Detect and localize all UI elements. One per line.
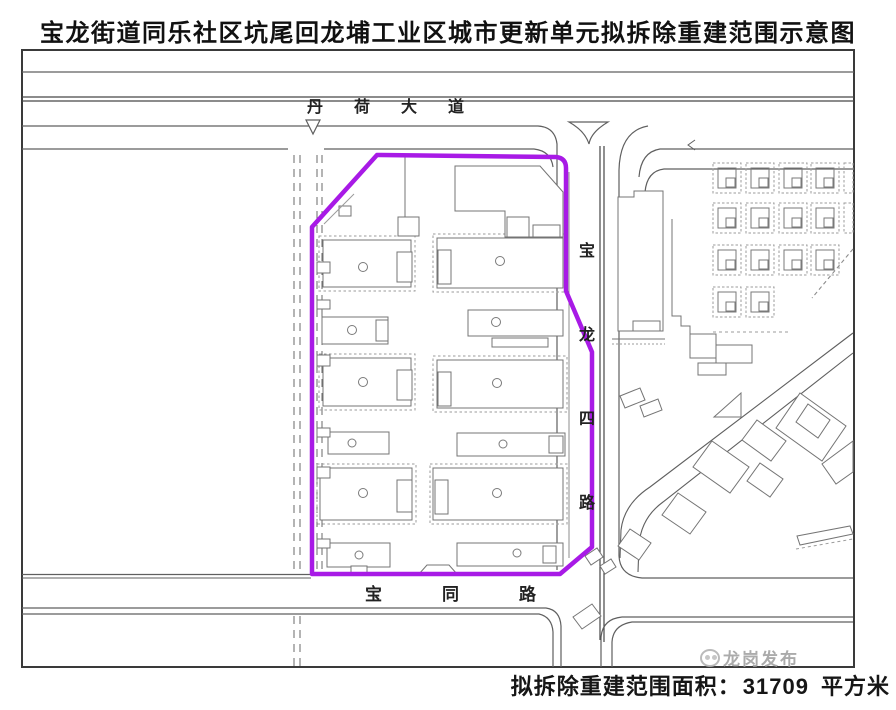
road-label-char: 荷 bbox=[354, 100, 370, 116]
road-label-danhe: 丹 荷 大 道 bbox=[307, 100, 464, 116]
road-label-char: 同 bbox=[442, 586, 459, 603]
road-label-baolong: 宝 龙 四 路 bbox=[579, 244, 595, 512]
area-label: 拟拆除重建范围面积： bbox=[511, 674, 741, 699]
road-label-char: 龙 bbox=[579, 328, 595, 344]
area-caption: 拟拆除重建范围面积：31709平方米 bbox=[0, 669, 890, 701]
road-label-char: 道 bbox=[448, 100, 464, 116]
longgang-logo-icon bbox=[700, 649, 720, 667]
road-label-char: 宝 bbox=[579, 244, 595, 260]
road-label-char: 宝 bbox=[365, 586, 382, 603]
area-value: 31709 bbox=[743, 674, 809, 699]
schematic-page: 宝龙街道同乐社区坑尾回龙埔工业区城市更新单元拟拆除重建范围示意图 bbox=[0, 0, 896, 710]
road-label-char: 路 bbox=[519, 586, 536, 603]
area-unit: 平方米 bbox=[821, 674, 890, 699]
road-label-char: 四 bbox=[579, 412, 595, 428]
watermark-text: 龙岗发布 bbox=[723, 645, 799, 670]
watermark: 龙岗发布 bbox=[700, 645, 799, 670]
road-label-baotong: 宝 同 路 bbox=[365, 586, 536, 603]
road-label-char: 大 bbox=[401, 100, 417, 116]
road-label-char: 路 bbox=[579, 496, 595, 512]
road-label-char: 丹 bbox=[307, 100, 323, 116]
page-title: 宝龙街道同乐社区坑尾回龙埔工业区城市更新单元拟拆除重建范围示意图 bbox=[0, 13, 896, 48]
